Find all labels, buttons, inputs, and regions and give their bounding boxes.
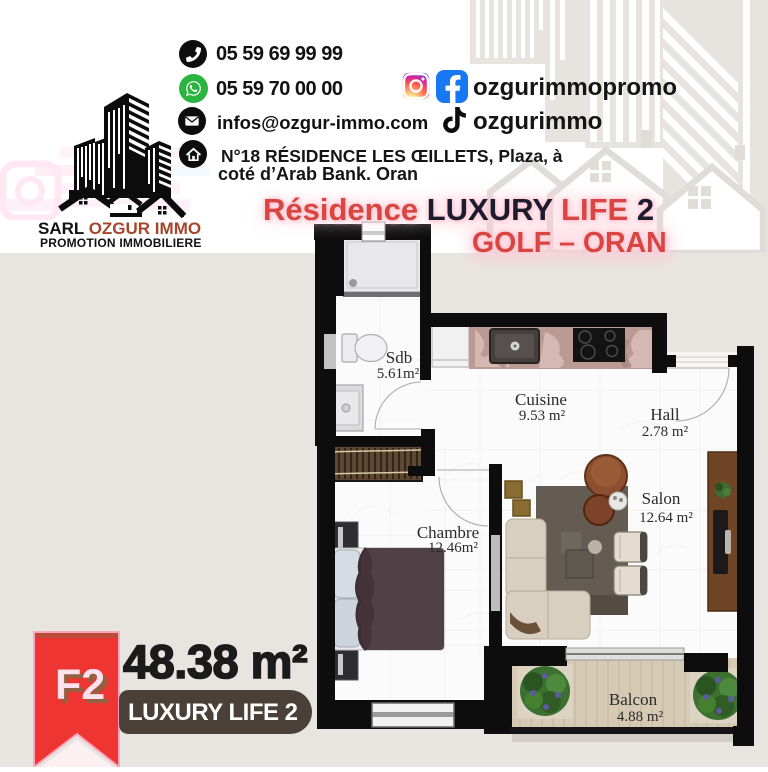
svg-text:Sdb: Sdb — [386, 348, 412, 367]
svg-text:Hall: Hall — [650, 405, 680, 424]
svg-text:Salon: Salon — [642, 489, 681, 508]
svg-text:Balcon: Balcon — [609, 690, 658, 709]
svg-text:5.61m²: 5.61m² — [377, 366, 420, 382]
svg-text:Cuisine: Cuisine — [515, 390, 567, 409]
svg-text:12.64 m²: 12.64 m² — [639, 510, 693, 526]
svg-text:9.53 m²: 9.53 m² — [519, 408, 566, 424]
svg-text:12.46m²: 12.46m² — [428, 540, 478, 556]
svg-text:4.88 m²: 4.88 m² — [617, 709, 664, 725]
svg-text:2.78 m²: 2.78 m² — [642, 424, 689, 440]
